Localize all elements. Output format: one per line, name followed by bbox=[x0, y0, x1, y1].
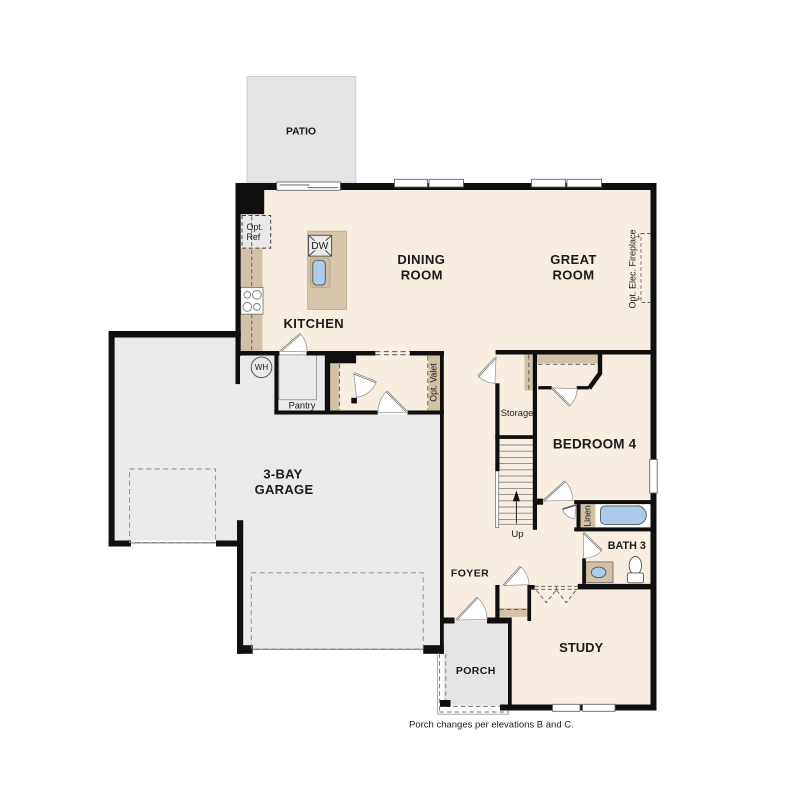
svg-text:Pantry: Pantry bbox=[289, 401, 316, 411]
svg-text:DW: DW bbox=[311, 241, 328, 252]
svg-text:Porch changes per elevations B: Porch changes per elevations B and C. bbox=[409, 720, 574, 731]
svg-text:GREAT: GREAT bbox=[550, 252, 597, 267]
svg-text:3-BAY: 3-BAY bbox=[263, 466, 302, 481]
svg-text:Opt.: Opt. bbox=[247, 222, 264, 232]
svg-text:BATH 3: BATH 3 bbox=[608, 540, 646, 552]
svg-text:BEDROOM 4: BEDROOM 4 bbox=[553, 436, 637, 451]
svg-text:Ref: Ref bbox=[247, 232, 261, 242]
svg-text:Storage: Storage bbox=[501, 408, 534, 418]
svg-text:PORCH: PORCH bbox=[456, 665, 496, 677]
svg-text:ROOM: ROOM bbox=[552, 268, 594, 283]
svg-text:ROOM: ROOM bbox=[401, 268, 443, 283]
svg-text:KITCHEN: KITCHEN bbox=[284, 316, 345, 331]
svg-text:STUDY: STUDY bbox=[559, 640, 603, 655]
svg-text:Opt. Elec. Fireplace: Opt. Elec. Fireplace bbox=[628, 229, 638, 308]
svg-text:WH: WH bbox=[255, 363, 269, 372]
svg-text:Linen: Linen bbox=[583, 505, 593, 527]
svg-text:FOYER: FOYER bbox=[451, 567, 489, 579]
svg-text:DINING: DINING bbox=[397, 252, 445, 267]
svg-text:Up: Up bbox=[511, 529, 523, 540]
svg-text:PATIO: PATIO bbox=[286, 127, 316, 138]
svg-text:GARAGE: GARAGE bbox=[255, 482, 314, 497]
svg-text:Opt. Valet: Opt. Valet bbox=[429, 363, 439, 402]
